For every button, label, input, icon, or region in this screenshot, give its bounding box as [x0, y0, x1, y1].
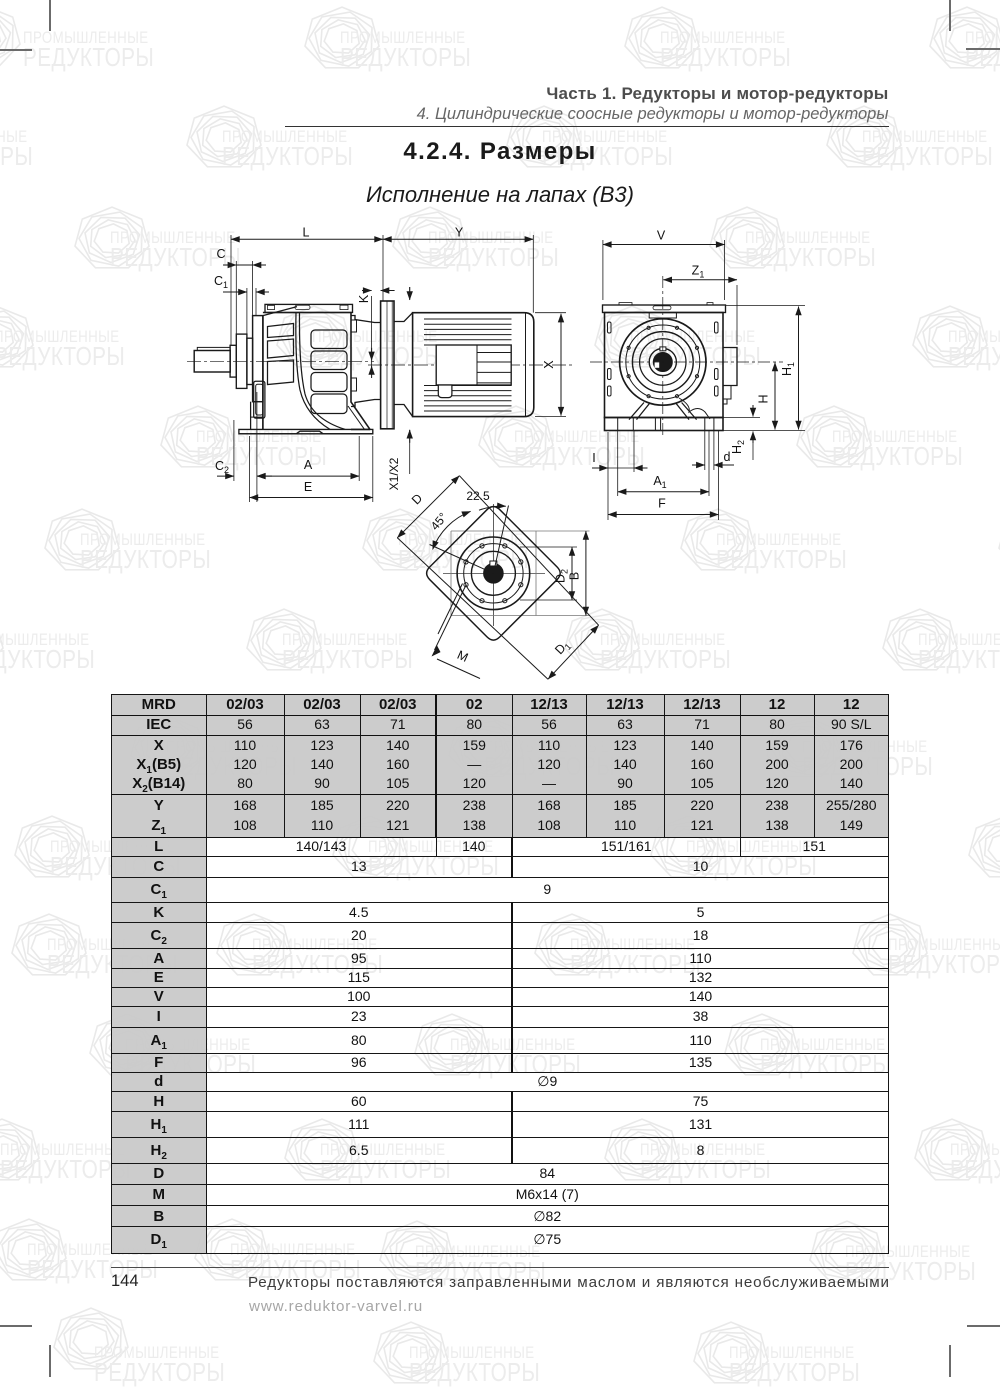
- svg-text:K: K: [357, 294, 371, 303]
- svg-text:C2: C2: [215, 459, 229, 475]
- svg-text:X1/X2: X1/X2: [387, 457, 401, 490]
- svg-text:C1: C1: [214, 274, 228, 290]
- svg-text:Y: Y: [455, 226, 464, 240]
- svg-text:D2: D2: [554, 569, 570, 583]
- svg-text:X: X: [542, 360, 556, 369]
- svg-text:H1: H1: [780, 362, 796, 376]
- svg-text:V: V: [657, 229, 666, 243]
- svg-text:d: d: [724, 450, 731, 464]
- svg-text:E: E: [304, 480, 312, 494]
- svg-text:F: F: [658, 497, 666, 511]
- svg-text:C: C: [216, 247, 225, 261]
- svg-text:H2: H2: [730, 440, 746, 454]
- svg-text:A: A: [304, 458, 313, 472]
- svg-text:B: B: [568, 572, 582, 580]
- svg-text:L: L: [303, 226, 310, 240]
- svg-text:45°: 45°: [428, 510, 451, 533]
- svg-text:D: D: [409, 491, 425, 507]
- svg-text:Z1: Z1: [692, 264, 705, 280]
- svg-text:H: H: [757, 394, 771, 403]
- svg-text:M: M: [455, 648, 470, 665]
- svg-text:A1: A1: [653, 474, 666, 490]
- svg-text:I: I: [592, 451, 595, 465]
